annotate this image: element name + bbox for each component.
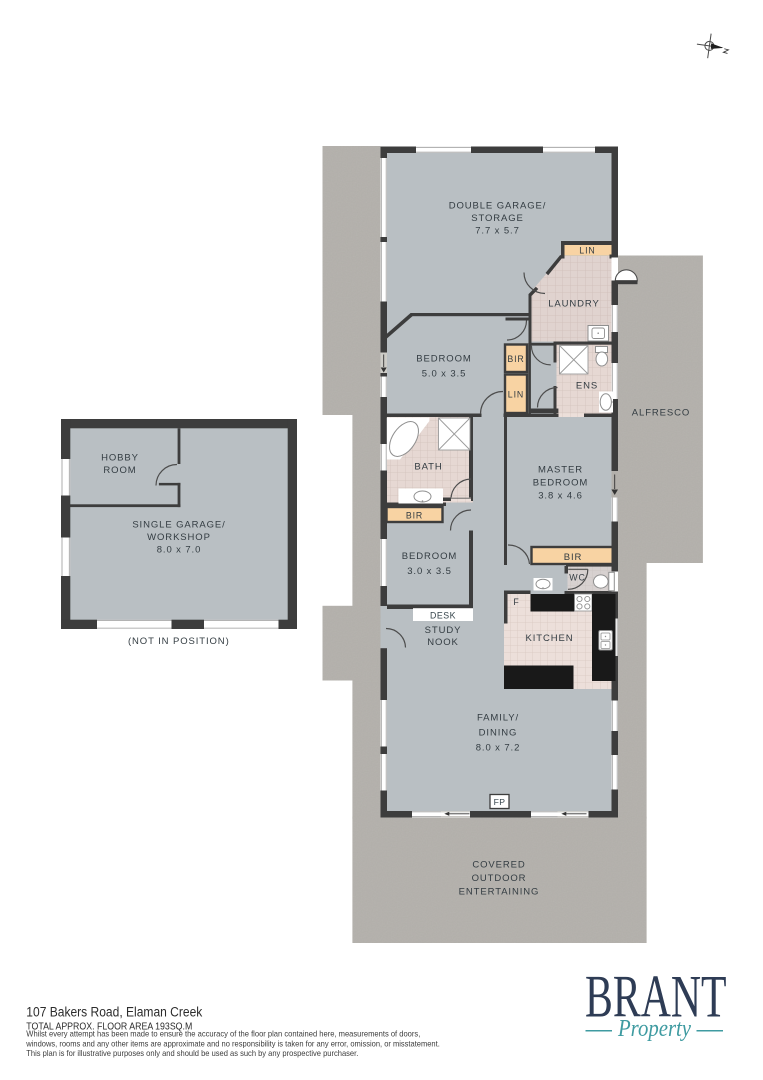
svg-text:3.0 x 3.5: 3.0 x 3.5 [407,566,452,577]
svg-text:ENTERTAINING: ENTERTAINING [459,887,540,898]
svg-text:5.0 x 3.5: 5.0 x 3.5 [422,369,467,380]
svg-text:107 Bakers Road, Elaman Creek: 107 Bakers Road, Elaman Creek [26,1004,202,1019]
svg-text:DOUBLE GARAGE/: DOUBLE GARAGE/ [449,201,547,212]
svg-text:7.7 x 5.7: 7.7 x 5.7 [475,226,520,237]
svg-text:BATH: BATH [414,462,442,473]
svg-text:ROOM: ROOM [103,465,136,476]
svg-text:NOOK: NOOK [427,637,459,648]
svg-text:(NOT IN POSITION): (NOT IN POSITION) [128,636,230,647]
svg-text:windows, rooms and any other i: windows, rooms and any other items are a… [25,1039,439,1048]
svg-text:8.0 x 7.0: 8.0 x 7.0 [157,545,202,556]
svg-text:FP: FP [494,797,506,807]
svg-text:8.0 x 7.2: 8.0 x 7.2 [476,743,521,754]
svg-text:SINGLE GARAGE/: SINGLE GARAGE/ [132,520,225,531]
svg-text:LIN: LIN [579,246,595,256]
svg-text:WC: WC [569,573,585,583]
svg-text:F: F [513,597,519,607]
svg-text:STUDY: STUDY [425,625,462,636]
svg-text:LIN: LIN [508,390,524,400]
svg-text:DESK: DESK [430,611,456,621]
svg-text:BEDROOM: BEDROOM [402,551,457,562]
svg-text:COVERED: COVERED [472,860,525,871]
svg-text:MASTER: MASTER [538,465,583,476]
svg-text:BIR: BIR [507,354,524,364]
svg-text:ENS: ENS [576,381,598,392]
svg-text:ALFRESCO: ALFRESCO [632,408,690,419]
svg-text:STORAGE: STORAGE [471,213,524,224]
svg-text:BIR: BIR [406,511,423,521]
svg-text:KITCHEN: KITCHEN [526,633,574,644]
svg-text:BIR: BIR [564,552,583,563]
svg-text:HOBBY: HOBBY [101,453,139,464]
svg-text:Whilst every attempt has been: Whilst every attempt has been made to en… [26,1030,420,1039]
svg-text:OUTDOOR: OUTDOOR [472,873,527,884]
svg-text:BEDROOM: BEDROOM [416,354,471,365]
svg-text:3.8 x 4.6: 3.8 x 4.6 [538,491,583,502]
svg-text:FAMILY/: FAMILY/ [477,713,519,724]
svg-text:BEDROOM: BEDROOM [533,478,588,489]
svg-text:Property: Property [617,1016,691,1042]
svg-text:This plan is for illustrative: This plan is for illustrative purposes o… [26,1049,358,1058]
svg-text:DINING: DINING [479,728,518,739]
svg-text:WORKSHOP: WORKSHOP [147,532,211,543]
svg-text:LAUNDRY: LAUNDRY [548,299,600,310]
